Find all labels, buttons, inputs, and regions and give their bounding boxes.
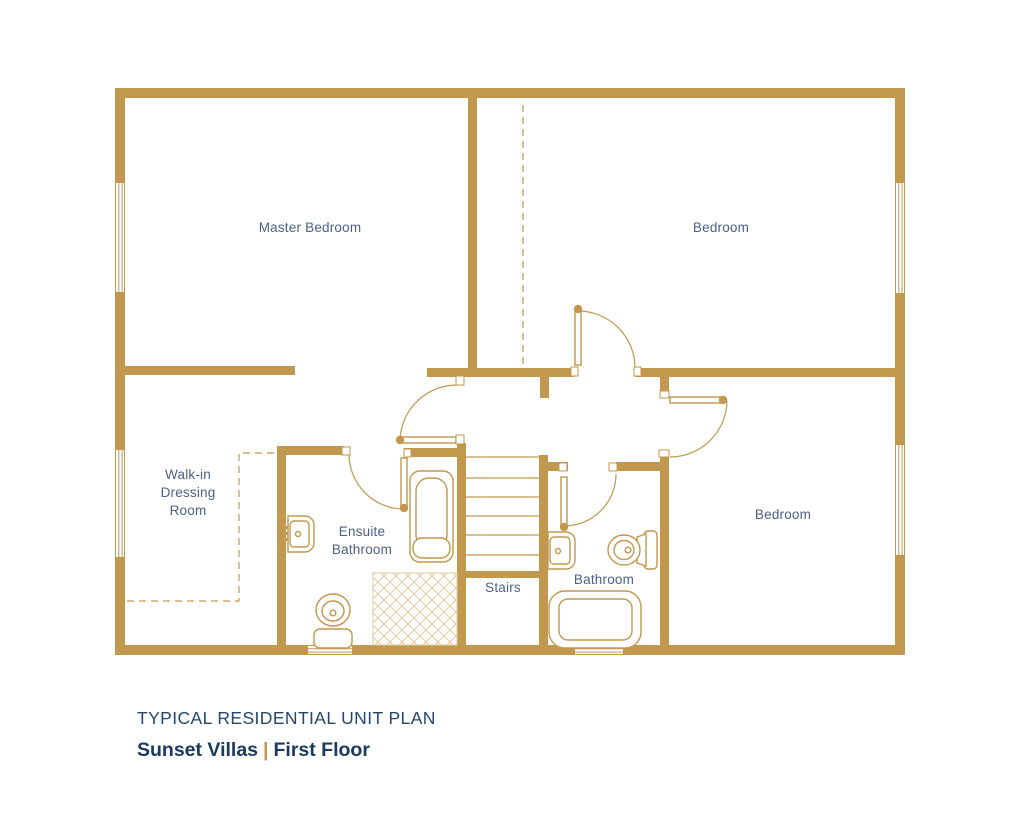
stairs-treads xyxy=(466,457,539,578)
door-swing-arc xyxy=(400,385,459,441)
door-hinge-dot xyxy=(719,396,727,404)
door-hinge-dot xyxy=(560,523,568,531)
door-swing-arc xyxy=(670,401,727,457)
ensuite-bathtub-icon xyxy=(410,471,453,562)
door-swing-arc xyxy=(564,474,616,526)
room-label-walk-in-dressing-room: Walk-in Dressing Room xyxy=(161,466,216,520)
door-swing-arc xyxy=(349,454,404,509)
interior-walls xyxy=(115,98,895,645)
door-leaf xyxy=(670,397,723,403)
door-hinge-dot xyxy=(396,436,404,444)
floor-name: First Floor xyxy=(274,739,370,762)
room-label-bedroom-bottom: Bedroom xyxy=(755,506,811,524)
door-master-bedroom xyxy=(396,376,464,444)
window-bedroom-bottom-right xyxy=(894,445,906,555)
project-name: Sunset Villas xyxy=(137,739,258,762)
door-leaf xyxy=(401,458,407,506)
door-hinge-dot xyxy=(400,504,408,512)
door-leaf xyxy=(575,311,581,365)
door-leaf xyxy=(400,437,456,443)
ensuite-toilet-icon xyxy=(314,594,352,648)
door-swing-arc xyxy=(578,311,635,368)
bathroom-toilet-icon xyxy=(608,531,657,569)
plan-title: TYPICAL RESIDENTIAL UNIT PLAN xyxy=(137,708,436,729)
door-leaf xyxy=(561,477,567,525)
room-label-bedroom-top: Bedroom xyxy=(693,219,749,237)
window-bedroom-top-right xyxy=(894,183,906,293)
ensuite-sink-icon xyxy=(285,516,314,552)
door-ensuite xyxy=(342,447,411,512)
room-label-master-bedroom: Master Bedroom xyxy=(259,219,362,237)
window-walkin-left xyxy=(114,450,126,557)
subtitle-separator: | xyxy=(263,739,268,762)
floor-plan-page: Master Bedroom Bedroom Bedroom Walk-in D… xyxy=(0,0,1024,833)
room-label-bathroom: Bathroom xyxy=(574,571,634,589)
bathroom-sink-icon xyxy=(545,532,575,569)
door-bedroom-bottom xyxy=(659,391,727,457)
door-hinge-dot xyxy=(574,305,582,313)
room-label-stairs: Stairs xyxy=(485,579,521,597)
door-bedroom-top xyxy=(571,305,641,376)
shower-area xyxy=(373,573,457,645)
window-master-left xyxy=(114,183,126,292)
plan-subtitle: Sunset Villas | First Floor xyxy=(137,739,436,762)
bathroom-bathtub-icon xyxy=(549,591,641,648)
title-block: TYPICAL RESIDENTIAL UNIT PLAN Sunset Vil… xyxy=(137,708,436,762)
room-label-ensuite-bathroom: Ensuite Bathroom xyxy=(332,523,392,559)
door-bathroom xyxy=(559,463,617,531)
